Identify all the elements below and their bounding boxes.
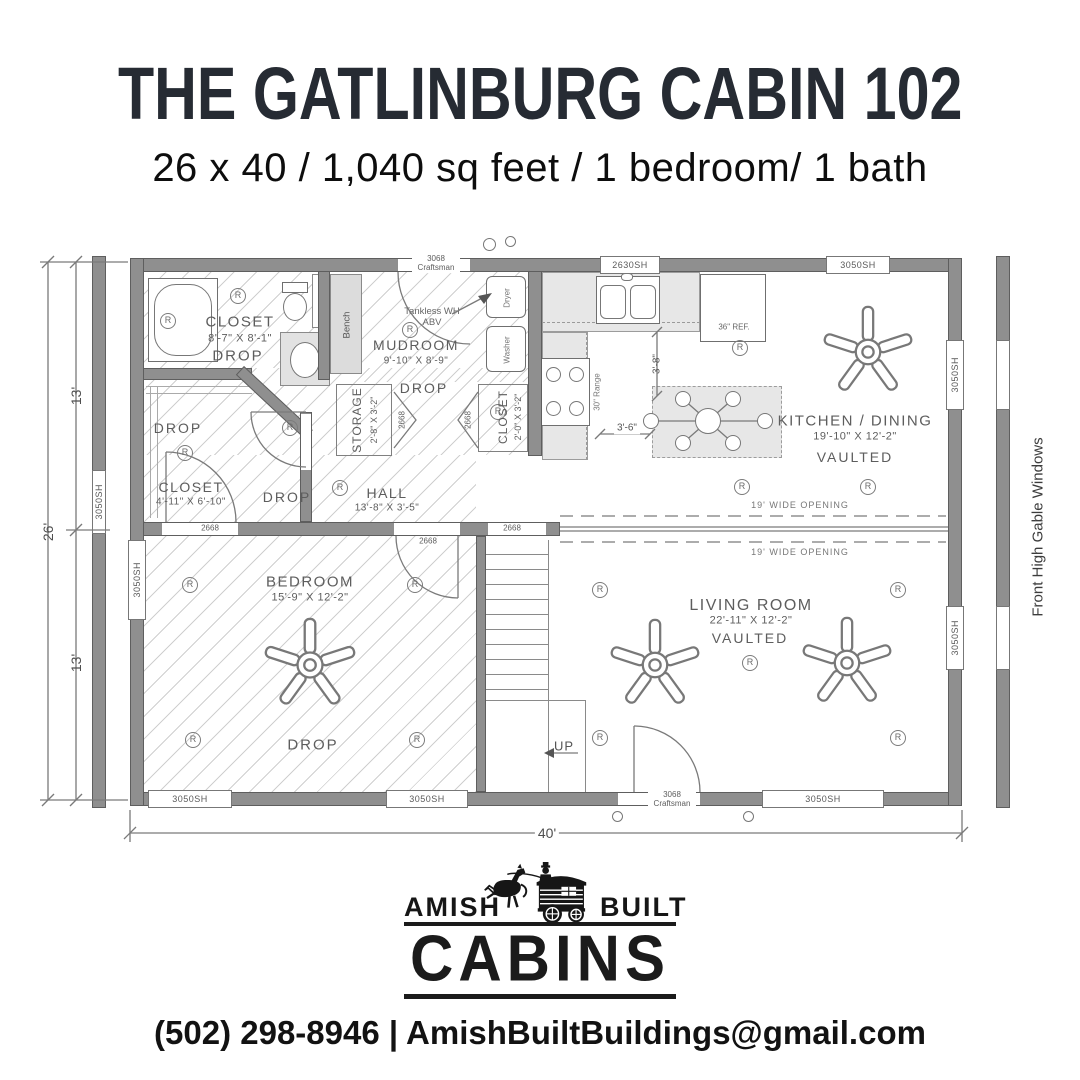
logo-word-amish: AMISH	[404, 892, 480, 923]
burner-icon	[546, 401, 561, 416]
wide-opening-label-top: 19' WIDE OPENING	[751, 500, 849, 510]
mudroom-dims: 9'-10" X 8'-9"	[384, 355, 449, 367]
dim-13ft-bottom: 13'	[68, 654, 84, 672]
dim-40ft: 40'	[535, 825, 559, 841]
back-door-label: 3068 Craftsman	[412, 255, 460, 273]
bedroom-dims: 15'-9" X 12'-2"	[272, 592, 349, 605]
recessed-light-icon: R	[409, 732, 425, 748]
gable-window-right-1	[996, 340, 1010, 410]
island-table	[695, 408, 721, 434]
vanity-sink	[290, 342, 320, 378]
logo-word-built: BUILT	[600, 892, 676, 923]
wall-mudroom-kitchen	[528, 258, 542, 456]
recessed-light-icon: R	[185, 732, 201, 748]
island-chair	[725, 391, 741, 407]
window-top-right: 3050SH	[826, 256, 890, 274]
mud-closet-door-size: 2668	[464, 411, 473, 429]
hall-door-size: 2668	[500, 523, 524, 532]
washer: Washer	[486, 326, 526, 372]
dim-3-6: 3'-6"	[614, 422, 640, 434]
wall-bath-south	[130, 368, 252, 380]
dim-26ft: 26'	[40, 523, 56, 541]
bedroom-closet-name: CLOSET	[158, 479, 223, 495]
recessed-light-icon: R	[742, 655, 758, 671]
closet-area-ceiling: DROP	[154, 420, 202, 436]
staircase-treads	[486, 540, 549, 700]
staircase-divider	[548, 700, 549, 792]
contact-info: (502) 298-8946 | AmishBuiltBuildings@gma…	[0, 1014, 1080, 1052]
window-bottom-3: 3050SH	[762, 790, 884, 808]
recessed-light-icon: R	[160, 313, 176, 329]
recessed-light-icon: R	[402, 322, 418, 338]
hall-ceiling: DROP	[263, 489, 311, 505]
washer-label: Washer	[503, 336, 512, 363]
wall-bench-left	[318, 258, 330, 380]
porch-light-icon	[743, 811, 754, 822]
bedroom-door-size: 2668	[416, 536, 440, 545]
window-bottom-2: 3050SH	[386, 790, 468, 808]
range-label: 30" Range	[593, 373, 602, 411]
bedroom-ceiling: DROP	[287, 736, 338, 753]
recessed-light-icon: R	[860, 479, 876, 495]
dim-3-8: 3'-8"	[652, 354, 663, 374]
front-door-label: 3068 Craftsman	[648, 791, 696, 809]
storage-door-size: 2668	[398, 411, 407, 429]
toilet-tank	[282, 282, 308, 293]
recessed-light-icon: R	[182, 577, 198, 593]
mudroom-ceiling: DROP	[400, 380, 448, 396]
ceiling-fan-living-2	[802, 618, 891, 703]
ceiling-fan-living-1	[610, 620, 699, 705]
refrigerator-label: 36" REF.	[718, 322, 749, 331]
mud-closet-dims: 2'-0" X 3'-2"	[513, 394, 523, 441]
porch-light-icon	[505, 236, 516, 247]
window-right-wall-2: 3050SH	[946, 606, 964, 670]
horse-and-buggy-logo	[478, 858, 602, 928]
range	[540, 358, 590, 426]
kitchen-name: KITCHEN / DINING	[778, 412, 933, 429]
dim-13ft-top: 13'	[68, 387, 84, 405]
wall-stair-west	[476, 536, 486, 792]
gable-window-right-2	[996, 606, 1010, 670]
logo-word-cabins: CABINS	[390, 921, 690, 996]
toilet-bowl	[283, 293, 307, 321]
recessed-light-icon: R	[592, 730, 608, 746]
bench-label: Bench	[342, 312, 353, 339]
storage-dims: 2'-8" X 3'-2"	[369, 397, 379, 444]
island-chair	[675, 435, 691, 451]
recessed-light-icon: R	[734, 479, 750, 495]
window-kitchen-sink: 2630SH	[600, 256, 660, 274]
porch-light-icon	[483, 238, 496, 251]
burner-icon	[569, 401, 584, 416]
porch-light-icon	[612, 811, 623, 822]
island-chair	[643, 413, 659, 429]
ceiling-fan-kitchen	[823, 307, 912, 392]
gable-wall-right	[996, 256, 1010, 808]
bathroom-ceiling: DROP	[212, 347, 263, 364]
kitchen-ceiling: VAULTED	[817, 449, 894, 465]
hall-dims: 13'-8" X 3'-5"	[355, 502, 420, 514]
recessed-light-icon: R	[230, 288, 246, 304]
living-name: LIVING ROOM	[689, 597, 812, 615]
kitchen-sink	[596, 276, 660, 324]
bedroom-door-opening	[394, 523, 460, 535]
mudroom-name: MUDROOM	[373, 337, 459, 353]
island-chair	[675, 391, 691, 407]
bedroom-closet-dims: 4'-11" X 6'-10"	[156, 496, 226, 508]
gable-windows-note: Front High Gable Windows	[1030, 437, 1047, 616]
bedroom-name: BEDROOM	[266, 573, 354, 590]
recessed-light-icon: R	[592, 582, 608, 598]
logo-divider-bottom	[404, 994, 676, 999]
burner-icon	[569, 367, 584, 382]
recessed-light-icon: R	[332, 480, 348, 496]
island-chair	[757, 413, 773, 429]
living-ceiling: VAULTED	[712, 630, 789, 646]
storage-name: STORAGE	[350, 387, 364, 452]
dryer: Dryer	[486, 276, 526, 318]
poster: THE GATLINBURG CABIN 102 26 x 40 / 1,040…	[0, 0, 1080, 1080]
recessed-light-icon: R	[890, 582, 906, 598]
faucet-icon	[621, 273, 633, 281]
wide-opening-label-bottom: 19' WIDE OPENING	[751, 547, 849, 557]
living-dims: 22'-11" X 12'-2"	[710, 615, 793, 628]
sink-basin-right	[630, 285, 656, 319]
recessed-light-icon: R	[177, 445, 193, 461]
hall-name: HALL	[366, 485, 407, 501]
stairs-up-label: UP	[554, 740, 574, 755]
bench: Bench	[330, 274, 362, 374]
burner-icon	[546, 367, 561, 382]
sink-basin-left	[600, 285, 626, 319]
recessed-light-icon: R	[407, 577, 423, 593]
dryer-label: Dryer	[503, 288, 512, 308]
bathroom-name: CLOSET	[205, 313, 274, 330]
closet-door-size: 2668	[198, 523, 222, 532]
storage-closet-box	[336, 384, 392, 456]
bathroom-dims: 8'-7" X 8'-1"	[208, 333, 272, 346]
window-right-wall-1: 3050SH	[946, 340, 964, 410]
recessed-light-icon: R	[890, 730, 906, 746]
window-bottom-1: 3050SH	[148, 790, 232, 808]
recessed-light-icon: R	[282, 420, 298, 436]
mud-closet-name: CLOSET	[496, 390, 510, 444]
kitchen-dims: 19'-10" X 12'-2"	[813, 431, 897, 444]
island-chair	[725, 435, 741, 451]
bath-door-opening	[301, 414, 311, 470]
window-left-wall: 3050SH	[128, 540, 146, 620]
wall-left	[130, 258, 144, 806]
gable-window-left: 3050SH	[92, 470, 106, 534]
closet-shelf-line-2	[146, 386, 252, 394]
recessed-light-icon: R	[732, 340, 748, 356]
refrigerator: 36" REF.	[700, 274, 766, 342]
